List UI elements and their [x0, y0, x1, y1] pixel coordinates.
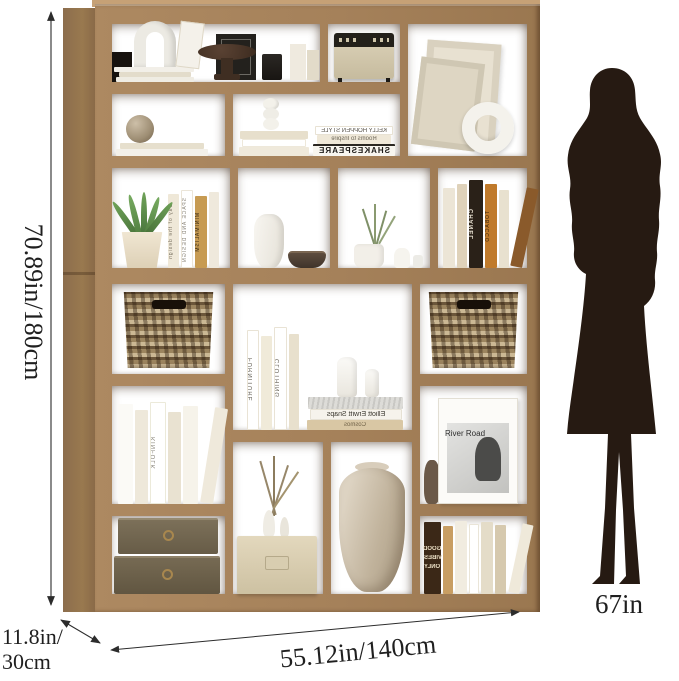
- depth-dimension-label-line2: 30cm: [2, 649, 51, 675]
- scale-reference-figure: [548, 62, 676, 602]
- product-dimension-image: SHAKESPEARE Rooms to Inspire KELLY HOPPE…: [0, 0, 679, 681]
- depth-dimension-arrow: [61, 620, 100, 643]
- person-height-label: 67in: [595, 589, 643, 620]
- depth-dimension-label-line1: 11.8in/: [2, 624, 63, 650]
- woman-silhouette-icon: [567, 68, 661, 584]
- height-dimension-label: 70.89in/180cm: [18, 172, 48, 432]
